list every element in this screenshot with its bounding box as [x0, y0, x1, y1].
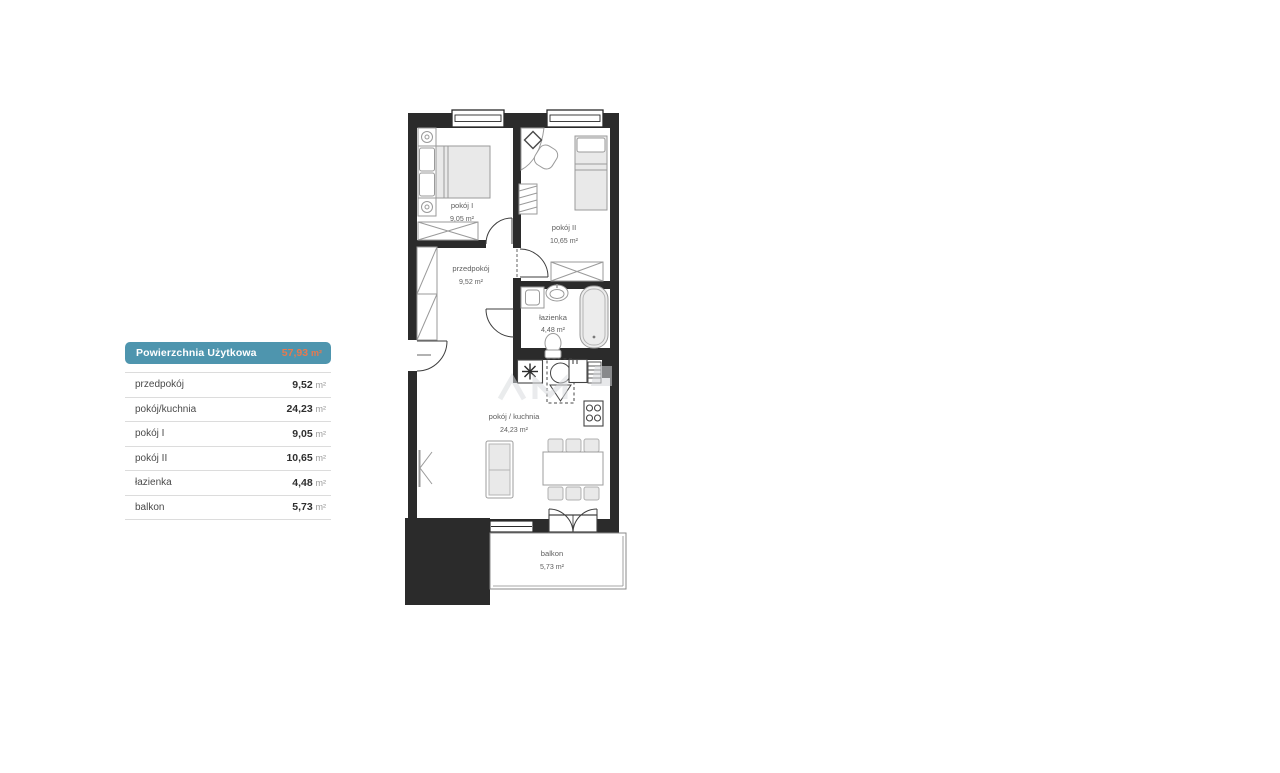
- area-pokoj-2: 10,65 m²: [550, 237, 579, 245]
- legend-row-przedpokoj: przedpokój 9,52 m²: [125, 373, 331, 398]
- row-label: przedpokój: [135, 379, 184, 390]
- nightstand-icon: [418, 198, 436, 216]
- sink-icon: [518, 360, 543, 383]
- row-label: pokój I: [135, 428, 164, 439]
- tv-icon: [420, 450, 433, 487]
- fridge-icon: [569, 360, 587, 383]
- furniture-pokoj-2: [519, 128, 607, 281]
- window-living-room: [490, 521, 533, 532]
- row-value: 9,52 m²: [292, 379, 326, 391]
- furniture-pokoj-1: [418, 128, 490, 240]
- row-label: balkon: [135, 502, 164, 513]
- window-pokoj-2: [547, 110, 603, 127]
- area-przedpokoj: 9,52 m²: [459, 278, 484, 286]
- legend-row-pokoj-2: pokój II 10,65 m²: [125, 447, 331, 472]
- hall-wardrobe-icon: [417, 247, 437, 340]
- wardrobe-icon: [551, 262, 603, 281]
- label-pokoj-kuchnia: pokój / kuchnia: [489, 412, 540, 421]
- area-balkon: 5,73 m²: [540, 563, 565, 571]
- legend-row-lazienka: łazienka 4,48 m²: [125, 471, 331, 496]
- area-lazienka: 4,48 m²: [541, 326, 566, 334]
- area-pokoj-1: 9,05 m²: [450, 215, 475, 223]
- toilet-icon: [545, 334, 561, 359]
- stove-icon: [584, 401, 603, 426]
- row-label: pokój II: [135, 453, 167, 464]
- bathtub-icon: [580, 286, 608, 348]
- shelf-icon: [519, 184, 537, 214]
- row-value: 10,65 m²: [286, 452, 326, 464]
- legend-row-pokoj-kuchnia: pokój/kuchnia 24,23 m²: [125, 398, 331, 423]
- label-przedpokoj: przedpokój: [452, 264, 489, 273]
- row-label: pokój/kuchnia: [135, 404, 196, 415]
- nightstand-icon: [418, 128, 436, 146]
- label-pokoj-2: pokój II: [552, 223, 576, 232]
- row-value: 4,48 m²: [292, 477, 326, 489]
- wardrobe-icon: [418, 222, 478, 240]
- single-bed-icon: [575, 136, 607, 210]
- label-pokoj-1: pokój I: [451, 201, 473, 210]
- washing-machine-icon: [521, 287, 544, 308]
- row-value: 24,23 m²: [286, 403, 326, 415]
- door-lazienka: [486, 309, 514, 337]
- door-pokoj-2: [517, 249, 548, 277]
- row-value: 9,05 m²: [292, 428, 326, 440]
- row-label: łazienka: [135, 477, 172, 488]
- legend-rows: przedpokój 9,52 m² pokój/kuchnia 24,23 m…: [125, 372, 331, 520]
- door-balcony-french: [549, 509, 597, 533]
- label-lazienka: łazienka: [539, 313, 568, 322]
- floorplan: pokój I 9,05 m² pokój II 10,65 m² przedp…: [400, 105, 635, 610]
- row-value: 5,73 m²: [292, 501, 326, 513]
- balcony: [490, 533, 626, 589]
- door-entrance: [417, 341, 447, 371]
- legend-row-pokoj-1: pokój I 9,05 m²: [125, 422, 331, 447]
- dining-set-icon: [543, 439, 603, 500]
- furniture-living-room: [486, 439, 603, 500]
- double-bed-icon: [418, 146, 490, 198]
- label-balkon: balkon: [541, 549, 563, 558]
- legend-header-value: 57,93 m²: [282, 347, 322, 359]
- window-pokoj-1: [452, 110, 504, 127]
- door-pokoj-1: [486, 218, 512, 244]
- legend-header-label: Powierzchnia Użytkowa: [136, 347, 257, 359]
- sofa-icon: [486, 441, 513, 498]
- area-pokoj-kuchnia: 24,23 m²: [500, 426, 529, 434]
- furniture-przedpokoj: [417, 247, 437, 487]
- legend-header: Powierzchnia Użytkowa 57,93 m²: [125, 342, 331, 364]
- area-legend: Powierzchnia Użytkowa 57,93 m² przedpokó…: [125, 342, 331, 520]
- floorplan-svg: pokój I 9,05 m² pokój II 10,65 m² przedp…: [400, 105, 635, 610]
- legend-row-balkon: balkon 5,73 m²: [125, 496, 331, 521]
